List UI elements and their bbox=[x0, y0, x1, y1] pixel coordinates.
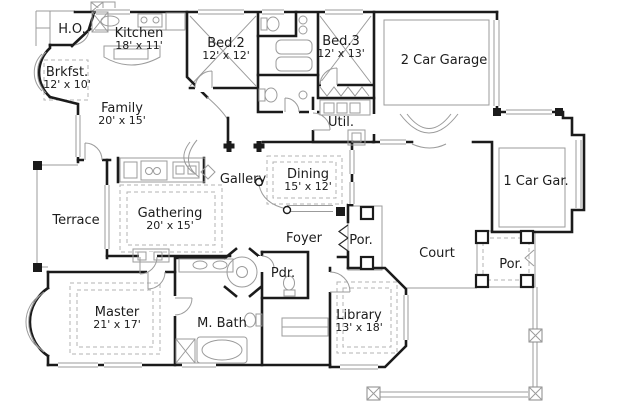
dining-post bbox=[336, 207, 345, 216]
floor-plan-image: H.O. Kitchen 18' x 11' Brkfst. 12' x 10'… bbox=[0, 0, 620, 415]
room-label-foyer: Foyer bbox=[286, 231, 323, 246]
room-label-pdr: Pdr. bbox=[271, 266, 295, 281]
breezeway-post bbox=[493, 108, 501, 116]
entry-porch-post bbox=[361, 257, 373, 269]
bath2-toilet bbox=[265, 88, 277, 102]
bath1-toilet bbox=[267, 17, 279, 31]
side-porch-post bbox=[476, 231, 488, 243]
entry-porch-post bbox=[361, 207, 373, 219]
terrace-post bbox=[33, 161, 42, 170]
side-porch-post bbox=[521, 231, 533, 243]
side-porch-post bbox=[476, 275, 488, 287]
garage1-door bbox=[576, 140, 581, 208]
terrace-post bbox=[33, 263, 42, 272]
room-label-por-entry: Por. bbox=[349, 233, 373, 248]
room-dims-dining: 15' x 12' bbox=[284, 180, 332, 193]
mbath-walls bbox=[175, 258, 225, 365]
drive-apron-arcs bbox=[400, 114, 458, 133]
room-dims-kitchen: 18' x 11' bbox=[115, 39, 163, 52]
room-label-court: Court bbox=[419, 246, 455, 261]
master-bay-glass bbox=[26, 292, 44, 352]
room-label-garage2: 2 Car Garage bbox=[401, 53, 488, 68]
bath2-tub bbox=[276, 57, 312, 71]
fridge bbox=[166, 13, 185, 30]
breezeway-post bbox=[555, 108, 563, 116]
colonnade-posts bbox=[367, 329, 542, 400]
side-porch-post bbox=[521, 275, 533, 287]
mbath-vanity bbox=[179, 259, 233, 272]
master-tub bbox=[202, 340, 242, 360]
master-west-bay bbox=[30, 272, 48, 365]
room-dims-gathering: 20' x 15' bbox=[146, 219, 194, 232]
family-west-wall bbox=[50, 97, 78, 162]
floor-plan-drawing: H.O. Kitchen 18' x 11' Brkfst. 12' x 10'… bbox=[0, 0, 620, 415]
room-dims-family: 20' x 15' bbox=[98, 114, 146, 127]
room-dims-master: 21' x 17' bbox=[93, 318, 141, 331]
room-dims-library: 13' x 18' bbox=[335, 321, 383, 334]
room-label-util: Util. bbox=[328, 115, 354, 130]
room-label-garage1: 1 Car Gar. bbox=[503, 174, 568, 189]
front-door-icon bbox=[339, 225, 348, 251]
room-label-por-side: Por. bbox=[499, 257, 523, 272]
room-label-terrace: Terrace bbox=[51, 213, 99, 228]
garage-right-walls bbox=[473, 12, 584, 232]
room-label-mbath: M. Bath bbox=[197, 316, 247, 331]
room-dims-bed2: 12' x 12' bbox=[202, 49, 250, 62]
bath1-tub bbox=[276, 40, 312, 54]
room-dims-brkfst: 12' x 10' bbox=[43, 78, 91, 91]
room-dims-bed3: 12' x 13' bbox=[317, 47, 365, 60]
room-label-ho: H.O. bbox=[58, 22, 86, 37]
court-corner-curve bbox=[412, 144, 446, 148]
master-tub-alcove bbox=[197, 337, 247, 363]
room-label-gallery: Gallery bbox=[220, 172, 267, 187]
gallery-columns bbox=[224, 141, 265, 152]
kitchen-arch bbox=[207, 97, 228, 120]
